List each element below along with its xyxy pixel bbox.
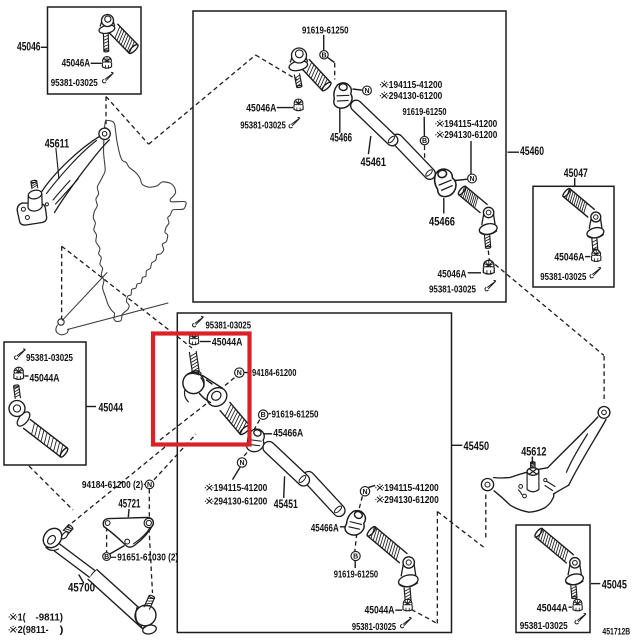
svg-text:95381-03025: 95381-03025 xyxy=(429,285,476,296)
svg-text:N: N xyxy=(237,370,242,377)
svg-text:294130-61200: 294130-61200 xyxy=(444,130,497,141)
svg-text:45044: 45044 xyxy=(99,403,124,415)
svg-text:194115-41200: 194115-41200 xyxy=(444,119,497,130)
svg-text:94184-61200: 94184-61200 xyxy=(252,368,297,379)
svg-text:): ) xyxy=(60,625,64,636)
svg-text:45046A: 45046A xyxy=(438,269,467,281)
svg-text:2(9811-: 2(9811- xyxy=(18,625,49,636)
svg-text:451712B: 451712B xyxy=(602,626,630,637)
svg-text:-9811): -9811) xyxy=(36,612,64,623)
svg-text:B: B xyxy=(104,554,109,561)
svg-text:95381-03025: 95381-03025 xyxy=(206,320,252,331)
svg-text:45611: 45611 xyxy=(45,139,70,151)
svg-text:N: N xyxy=(147,482,152,489)
svg-text:45461: 45461 xyxy=(361,157,387,169)
svg-text:B: B xyxy=(321,52,326,59)
svg-text:95381-03025: 95381-03025 xyxy=(520,621,568,632)
svg-text:45466: 45466 xyxy=(429,216,455,228)
svg-text:95381-03025: 95381-03025 xyxy=(352,622,396,633)
svg-text:45044A: 45044A xyxy=(30,373,60,385)
svg-text:45046A: 45046A xyxy=(62,58,91,70)
svg-text:45450: 45450 xyxy=(464,441,490,453)
svg-text:45046A: 45046A xyxy=(246,103,276,115)
svg-text:45466A: 45466A xyxy=(273,428,303,440)
svg-text:N: N xyxy=(362,489,367,496)
svg-text:294130-61200: 294130-61200 xyxy=(214,497,268,508)
svg-text:45700: 45700 xyxy=(68,583,95,595)
svg-text:45044A: 45044A xyxy=(537,602,568,614)
svg-text:95381-03025: 95381-03025 xyxy=(240,121,286,132)
svg-text:B: B xyxy=(422,138,427,145)
svg-text:294130-61200: 294130-61200 xyxy=(389,91,443,102)
svg-text:45045: 45045 xyxy=(602,579,628,591)
svg-text:94184-61200 (2): 94184-61200 (2) xyxy=(82,480,143,491)
svg-text:45460: 45460 xyxy=(520,146,544,158)
svg-text:1(: 1( xyxy=(18,612,27,623)
svg-text:45046: 45046 xyxy=(17,42,41,54)
svg-text:91651-61030 (2): 91651-61030 (2) xyxy=(117,553,178,564)
svg-text:N: N xyxy=(469,176,474,183)
svg-text:45451: 45451 xyxy=(274,499,298,511)
svg-text:91619-61250: 91619-61250 xyxy=(302,25,349,36)
svg-text:294130-61200: 294130-61200 xyxy=(384,495,439,506)
svg-text:45466: 45466 xyxy=(330,133,352,145)
svg-text:45046A: 45046A xyxy=(554,252,584,264)
svg-text:194115-41200: 194115-41200 xyxy=(214,483,268,494)
svg-text:B: B xyxy=(261,412,266,419)
svg-text:N: N xyxy=(239,460,244,467)
svg-text:45044A: 45044A xyxy=(212,336,243,348)
svg-text:95381-03025: 95381-03025 xyxy=(51,78,98,89)
svg-text:91619-61250: 91619-61250 xyxy=(334,570,379,581)
svg-text:N: N xyxy=(364,88,369,95)
svg-text:45721: 45721 xyxy=(118,499,140,511)
svg-text:91619-61250: 91619-61250 xyxy=(403,107,447,118)
svg-text:95381-03025: 95381-03025 xyxy=(540,272,586,283)
svg-text:95381-03025: 95381-03025 xyxy=(26,353,73,364)
svg-text:45047: 45047 xyxy=(564,168,588,180)
svg-text:B: B xyxy=(353,554,358,561)
svg-text:194115-41200: 194115-41200 xyxy=(384,483,439,494)
svg-text:194115-41200: 194115-41200 xyxy=(389,80,443,91)
svg-text:91619-61250: 91619-61250 xyxy=(272,409,319,420)
svg-text:45612: 45612 xyxy=(521,446,546,458)
svg-text:45466A: 45466A xyxy=(311,523,339,535)
svg-text:45044A: 45044A xyxy=(365,604,395,616)
